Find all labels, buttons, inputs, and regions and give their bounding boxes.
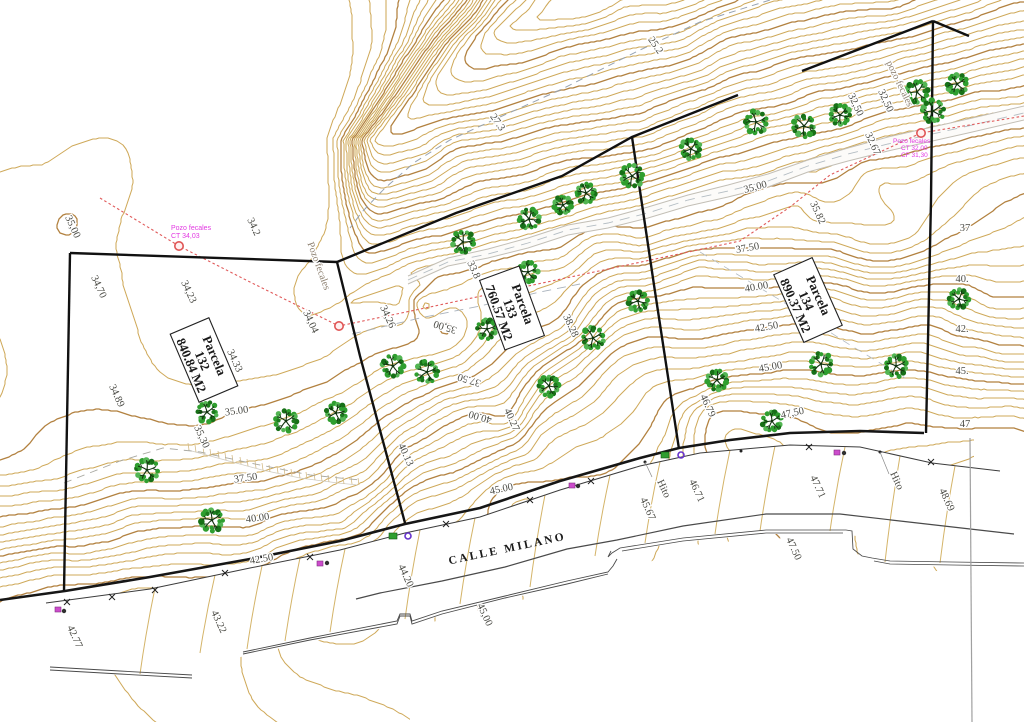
svg-text:45.00: 45.00 xyxy=(758,360,783,375)
svg-text:35.00: 35.00 xyxy=(224,404,249,418)
svg-text:Pozo fecales: Pozo fecales xyxy=(893,138,931,145)
svg-text:47,50: 47,50 xyxy=(780,406,805,422)
svg-text:35,00: 35,00 xyxy=(62,214,82,240)
svg-text:CT 34,03: CT 34,03 xyxy=(171,233,200,240)
svg-text:34.89: 34.89 xyxy=(106,383,126,409)
svg-text:40.00: 40.00 xyxy=(744,280,769,295)
svg-text:34,23: 34,23 xyxy=(178,279,198,305)
svg-text:Pozo fecales: Pozo fecales xyxy=(305,241,333,292)
svg-text:32,50: 32,50 xyxy=(875,88,895,114)
svg-text:35,30: 35,30 xyxy=(191,424,211,450)
svg-text:37.50: 37.50 xyxy=(735,241,760,256)
svg-text:CF 31,30: CF 31,30 xyxy=(901,152,928,159)
svg-text:CT 32,00: CT 32,00 xyxy=(901,145,928,152)
svg-text:40.00: 40.00 xyxy=(245,511,270,525)
svg-text:37.50: 37.50 xyxy=(233,471,258,485)
svg-text:34,70: 34,70 xyxy=(88,274,108,300)
svg-text:42.: 42. xyxy=(955,324,968,335)
svg-text:45.: 45. xyxy=(955,366,968,377)
svg-text:Pozo fecales: Pozo fecales xyxy=(171,225,212,232)
svg-text:35,00: 35,00 xyxy=(432,318,458,335)
svg-text:40.: 40. xyxy=(955,274,968,285)
svg-text:47: 47 xyxy=(960,419,971,430)
svg-text:34.2: 34.2 xyxy=(244,216,262,237)
svg-text:42.50: 42.50 xyxy=(754,320,779,335)
svg-text:37: 37 xyxy=(960,223,971,234)
svg-text:35.82: 35.82 xyxy=(807,200,827,226)
svg-text:40.00: 40.00 xyxy=(467,408,493,425)
